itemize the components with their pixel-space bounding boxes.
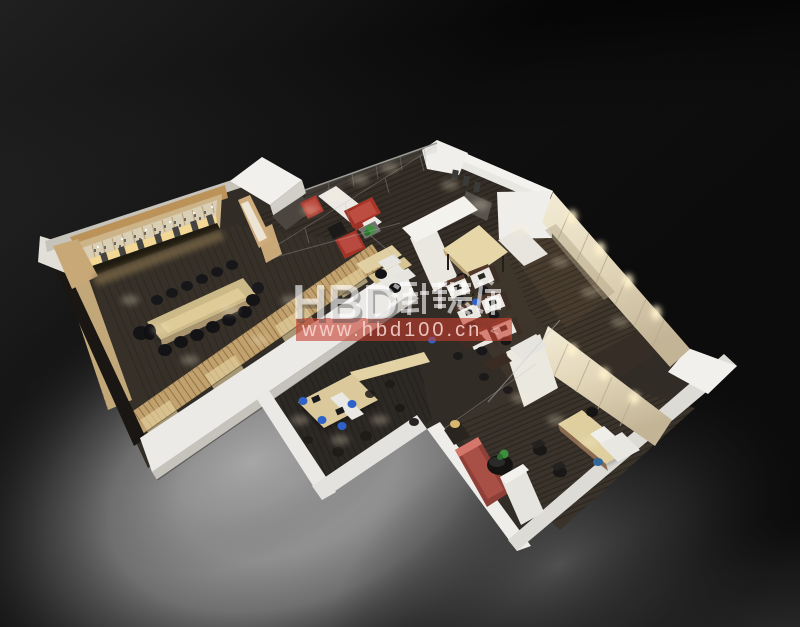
svg-text:HBD: HBD xyxy=(292,276,398,330)
svg-text:<: < xyxy=(490,323,499,340)
